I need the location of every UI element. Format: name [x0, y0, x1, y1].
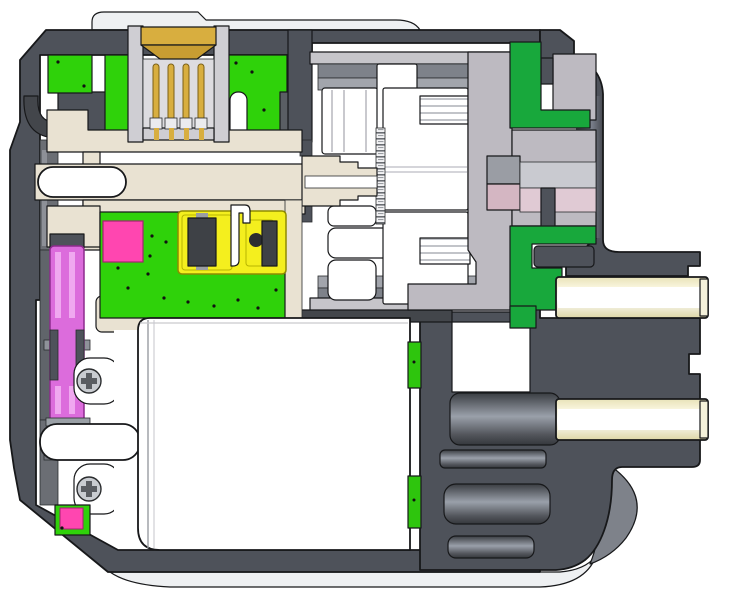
smd-chip-2 [262, 221, 277, 266]
small-component-pink [60, 508, 83, 529]
smd-chip-1 [188, 218, 216, 266]
bushing-bore-upper [558, 287, 706, 308]
spool-waist-notch [50, 330, 58, 380]
upper-pcb-square [48, 55, 92, 93]
bushing-cap-lower [700, 401, 708, 438]
boss-cylinder-small [440, 450, 546, 468]
seal-tail [510, 306, 536, 328]
pin [183, 64, 189, 122]
bearing-race-gray [520, 162, 596, 188]
motor-body [138, 318, 410, 550]
encoder-magnet-pink [103, 221, 143, 262]
bushing-cap-upper [700, 279, 708, 316]
bearing-race-pink [520, 188, 596, 212]
inner-divider-wall [288, 30, 312, 142]
motor-side-strip-green [408, 342, 421, 388]
pcb-via [250, 70, 253, 73]
sensor-dome [249, 233, 263, 247]
planet-gear-lower2 [328, 260, 376, 300]
main-pcb-assembly [100, 205, 286, 318]
seal-notch [534, 246, 594, 267]
boss-cylinder [450, 393, 560, 445]
pcb-via [148, 254, 151, 257]
pcb-via [256, 306, 259, 309]
pcb-via [82, 84, 85, 87]
bushing-bore-lower [558, 409, 706, 430]
pin-base [180, 118, 192, 129]
pcb-via [262, 108, 265, 111]
pcb-via [116, 266, 119, 269]
pin [153, 64, 159, 122]
pin-foot [199, 128, 204, 140]
pcb-via [164, 240, 167, 243]
pin [198, 64, 204, 122]
four-pin-connector [128, 26, 229, 142]
pcb-via [60, 526, 63, 529]
pin-base [195, 118, 207, 129]
pin-foot [184, 128, 189, 140]
housing-block-small [541, 188, 555, 230]
idler-gear-strip-lower [420, 238, 470, 264]
pin [168, 64, 174, 122]
cross-section-diagram [0, 0, 737, 592]
pcb-via [274, 288, 277, 291]
motor-side-strip-green [408, 476, 421, 528]
pcb-via [236, 298, 239, 301]
pin-base [165, 118, 177, 129]
screw-slot [81, 378, 97, 384]
pcb-column-cream [285, 200, 302, 318]
planet-gear-upper [322, 88, 378, 154]
pin-foot [154, 128, 159, 140]
housing-block-small [541, 58, 553, 84]
pcb-via [413, 499, 416, 502]
pcb-via [162, 296, 165, 299]
pcb-via [413, 361, 416, 364]
screw-slot [81, 486, 97, 492]
pcb-via [146, 272, 149, 275]
spool-highlight [55, 386, 61, 414]
spool-highlight [55, 252, 61, 318]
pcb-via [234, 61, 237, 64]
pcb-via [212, 304, 215, 307]
boss-cylinder-mid [444, 484, 550, 524]
planet-gear-lower [328, 206, 376, 226]
actuator-cutaway-svg [0, 0, 737, 592]
connector-cap-gold [141, 27, 216, 45]
pin-foot [169, 128, 174, 140]
boss-cylinder-low [448, 536, 534, 558]
pcb-via [186, 300, 189, 303]
upper-pcb-strip-left [105, 55, 129, 140]
shaft-bore-capsule [38, 167, 126, 197]
bearing-block-gray [487, 156, 520, 184]
housing-cavity-gap [452, 322, 530, 392]
idler-gear-strip [420, 96, 468, 124]
bottom-left-pcb [55, 505, 90, 535]
pcb-via [56, 60, 59, 63]
bearing-block-pink [487, 184, 520, 210]
shaft-bore-line [305, 176, 377, 188]
pcb-via [150, 234, 153, 237]
pcb-via [126, 286, 129, 289]
pin-base [150, 118, 162, 129]
spool-highlight [69, 252, 75, 318]
lower-shaft-capsule [40, 424, 140, 460]
